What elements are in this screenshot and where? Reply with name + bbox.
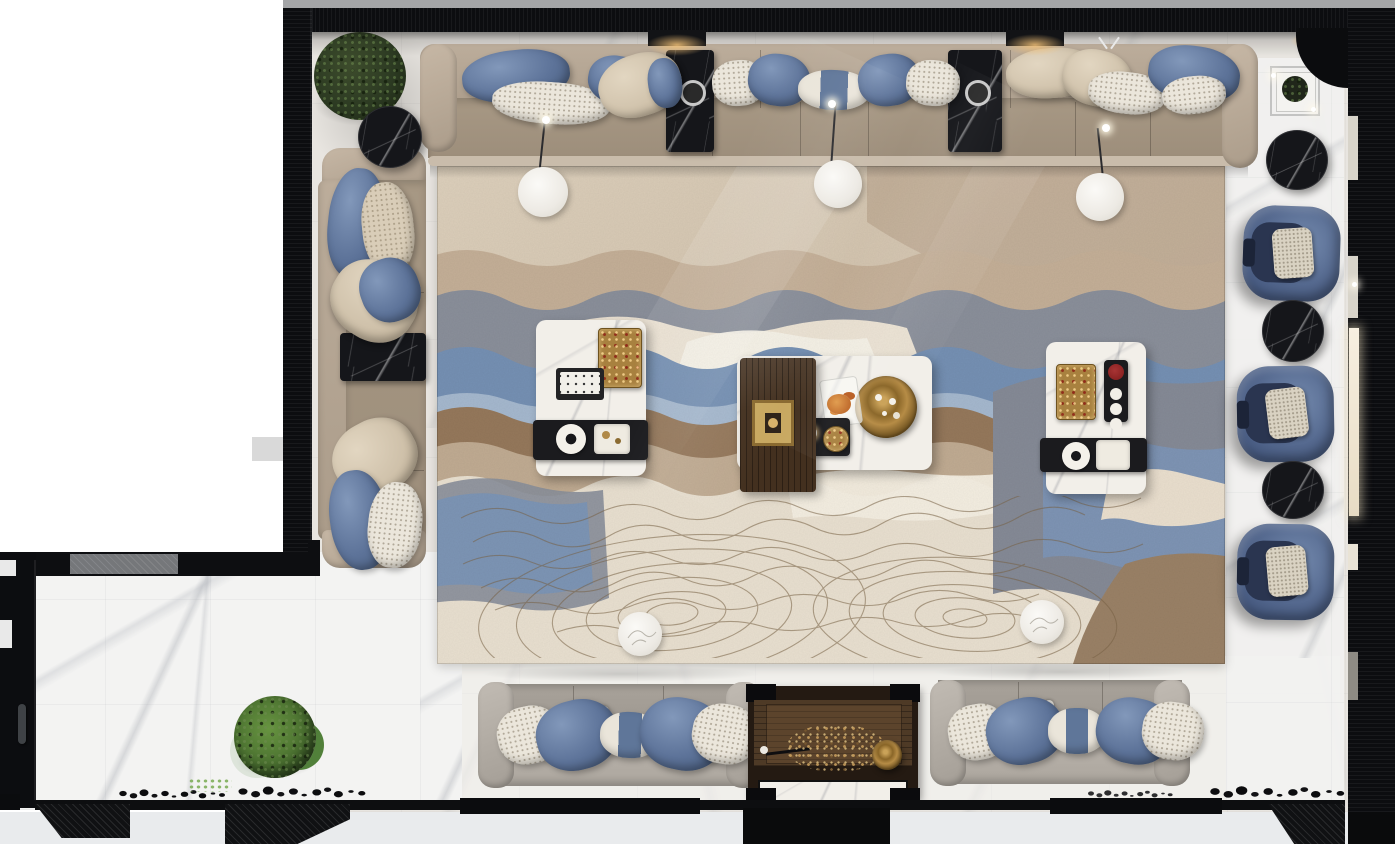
door-handle [18,704,26,744]
ceiling-light-glow [646,34,708,56]
armchair-blue-2 [1236,365,1335,463]
sofa-seam [800,102,801,156]
light-glint [1271,73,1276,78]
brass-tray-cups [875,394,882,401]
pebble-row-1 [119,791,127,796]
dish-white [594,424,630,454]
sofa-bottom-left [478,680,762,790]
pebble-row-3 [1088,791,1094,795]
wall-corridor-left [0,552,36,808]
render-canvas [0,0,1395,844]
pebble-row-4 [1210,788,1220,795]
wall-light-block [1348,652,1358,700]
wall-light-block [1348,256,1358,318]
wall-left-edge-highlight [310,8,313,552]
tray-dots-white [1110,388,1122,400]
wall-partition-center [743,808,890,844]
sofa-top-arm-left [420,44,457,152]
door-seam [34,560,36,800]
wall-notch-white [0,560,16,576]
plant-bottom-left [230,694,320,784]
wall-corner-bottom-right [1348,812,1395,844]
armchair-cushion [1265,544,1309,597]
walnut-coffee-table-bottom [746,684,920,810]
dish-gold-bits [602,431,610,439]
wall-corner-bottom-left [0,794,20,810]
armchair-cushion [1264,386,1310,441]
bowl-white [556,424,586,454]
green-tuft [188,778,232,792]
red-rose [1108,364,1124,380]
wall-notch-white [0,620,12,648]
serving-tray-black [1040,438,1147,472]
pouf-swirl [1020,600,1064,644]
bowl-white [1062,442,1090,470]
coffee-table-left [533,318,648,478]
dried-flowers [786,724,886,772]
floor-lamp-base-1 [518,167,568,217]
gold-bowl [823,426,849,452]
sofa-top [418,42,1258,172]
side-table-round-black-1 [1266,130,1328,190]
wall-light-bar [1349,328,1359,516]
coffee-table-right [1040,340,1147,494]
outside-gray-sliver [252,437,283,461]
pouf-2 [1020,600,1064,644]
pouf-1 [618,612,662,656]
light-glint [1352,282,1357,287]
bush-foliage-texture [234,696,316,778]
inset-table-knob-1 [680,80,706,106]
armchair-cushion [1271,227,1314,280]
pebble-row-2 [239,788,248,794]
gold-tray [1056,364,1096,420]
outside-gray [0,812,1395,844]
side-table-round-black-3 [1262,461,1324,519]
armchair-opening [1237,401,1249,429]
brass-round-tray [855,376,917,438]
wall-corridor-corner [308,540,320,576]
dark-vase-plant [1282,76,1308,102]
rod-white-ball [760,746,768,754]
brass-bowl [872,740,902,770]
wall-light-block [1348,544,1358,570]
gold-tray [598,328,642,388]
floor-lamp-bulb [828,100,836,108]
ceiling-light-glow [1004,34,1066,56]
floor-lamp-bulb [542,116,550,124]
brass-candle-block [752,400,794,446]
wall-left-upper [283,8,312,552]
wall-top-inner-shade [283,32,1360,40]
wall-corridor-gray-segment [70,554,178,574]
wall-bottom-thick [460,798,700,814]
wall-top [283,8,1360,32]
floor-lamp-bulb [1102,124,1110,132]
floor-lamp-base-3 [1076,173,1124,221]
sofa-seam [868,102,869,156]
outside-white-top-left [0,0,283,552]
wall-light-block [1348,116,1358,180]
side-table-round-black-0 [358,106,422,168]
orange-flowers [827,394,851,414]
candle-block-knob [768,418,778,428]
sofa-bottom-right [930,678,1190,788]
sofa-seam [1075,102,1076,156]
floor-lamp-base-2 [814,160,862,208]
pouf-swirl [618,612,662,656]
armchair-opening [1237,557,1249,585]
remote-control [560,372,600,394]
dish-white [1096,440,1130,470]
table-marble-slab [758,780,908,802]
armchair-blue-3 [1236,523,1335,621]
sofa-left [318,148,428,568]
wall-bottom-thick [1050,798,1222,814]
side-table-round-black-2 [1262,300,1324,362]
light-glint [1311,107,1316,112]
armchair-blue-1 [1241,204,1341,302]
armchair-opening [1243,238,1256,266]
serving-tray-black [533,420,648,460]
inset-table-knob-2 [965,80,991,106]
